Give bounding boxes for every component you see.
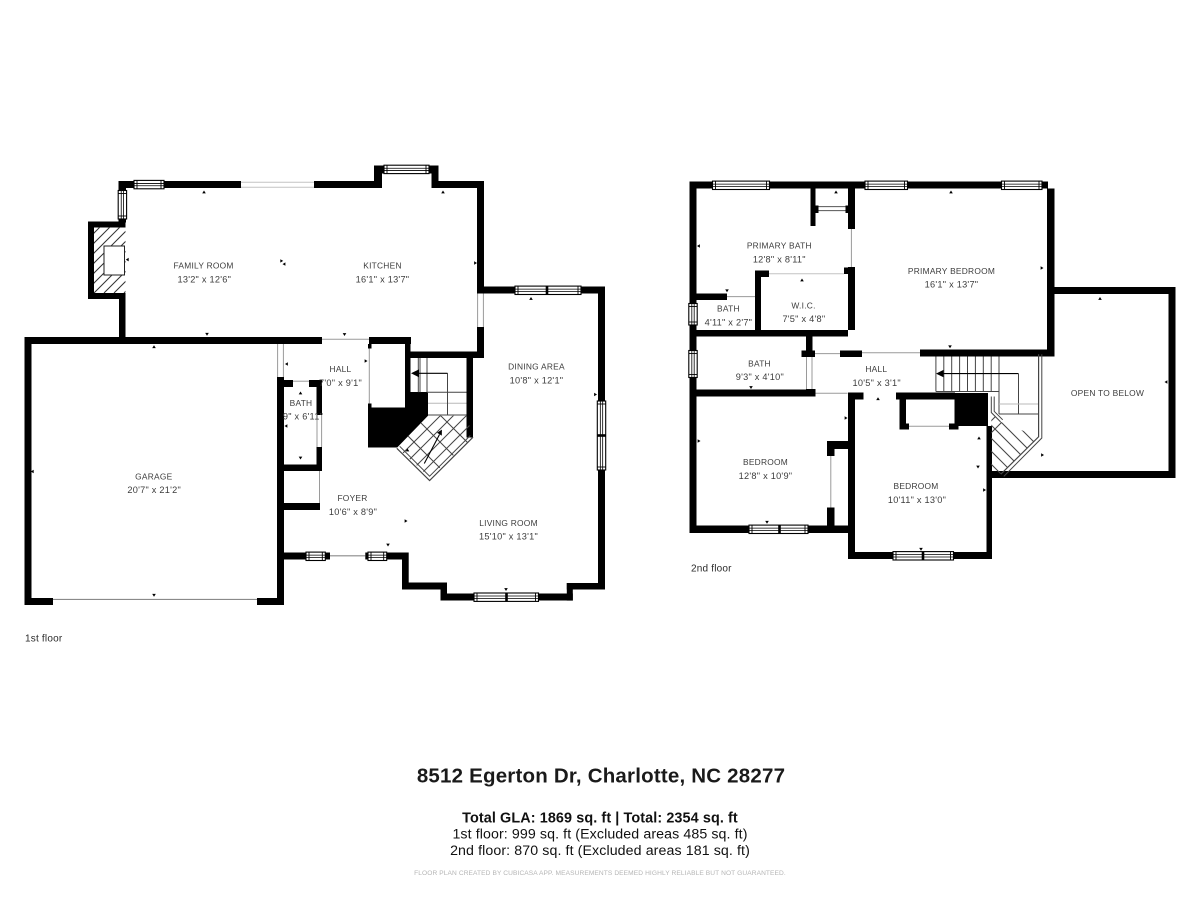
svg-text:KITCHEN: KITCHEN bbox=[363, 261, 402, 271]
svg-text:FAMILY ROOM: FAMILY ROOM bbox=[174, 261, 234, 271]
svg-text:10'5" x 3'1": 10'5" x 3'1" bbox=[853, 378, 901, 388]
svg-text:HALL: HALL bbox=[865, 364, 887, 374]
svg-text:BATH: BATH bbox=[290, 398, 313, 408]
svg-text:GARAGE: GARAGE bbox=[135, 471, 172, 481]
svg-text:12'8" x 8'11": 12'8" x 8'11" bbox=[753, 254, 806, 264]
svg-text:OPEN TO BELOW: OPEN TO BELOW bbox=[1071, 388, 1144, 398]
svg-text:16'1" x 13'7": 16'1" x 13'7" bbox=[356, 275, 410, 285]
svg-text:BEDROOM: BEDROOM bbox=[743, 457, 788, 467]
svg-text:2nd floor: 870 sq. ft (Exclude: 2nd floor: 870 sq. ft (Excluded areas 18… bbox=[450, 843, 750, 859]
svg-text:LIVING ROOM: LIVING ROOM bbox=[479, 518, 538, 528]
svg-text:16'1" x 13'7": 16'1" x 13'7" bbox=[925, 280, 979, 290]
svg-text:10'8" x 12'1": 10'8" x 12'1" bbox=[510, 375, 564, 385]
svg-text:8512 Egerton Dr, Charlotte, NC: 8512 Egerton Dr, Charlotte, NC 28277 bbox=[417, 765, 785, 788]
svg-text:DINING AREA: DINING AREA bbox=[508, 362, 565, 372]
svg-text:PRIMARY BATH: PRIMARY BATH bbox=[747, 241, 812, 251]
svg-text:Total GLA: 1869 sq. ft | Total: Total GLA: 1869 sq. ft | Total: 2354 sq.… bbox=[462, 811, 738, 827]
svg-text:1st floor: 999 sq. ft (Exclude: 1st floor: 999 sq. ft (Excluded areas 48… bbox=[452, 827, 747, 843]
svg-text:BATH: BATH bbox=[717, 304, 740, 314]
svg-text:BATH: BATH bbox=[748, 358, 771, 368]
svg-text:1st floor: 1st floor bbox=[25, 634, 63, 645]
svg-text:7'0" x 9'1": 7'0" x 9'1" bbox=[319, 378, 362, 388]
svg-text:HALL: HALL bbox=[330, 364, 352, 374]
svg-text:BEDROOM: BEDROOM bbox=[893, 481, 938, 491]
svg-text:13'2" x 12'6": 13'2" x 12'6" bbox=[177, 275, 231, 285]
svg-text:9" x 6'11": 9" x 6'11" bbox=[283, 412, 323, 422]
svg-text:W.I.C.: W.I.C. bbox=[791, 300, 815, 310]
svg-text:12'8" x 10'9": 12'8" x 10'9" bbox=[739, 471, 793, 481]
svg-text:2nd floor: 2nd floor bbox=[691, 564, 732, 575]
svg-text:7'5" x 4'8": 7'5" x 4'8" bbox=[782, 314, 825, 324]
svg-text:FOYER: FOYER bbox=[337, 493, 367, 503]
svg-text:20'7" x 21'2": 20'7" x 21'2" bbox=[127, 485, 181, 495]
svg-text:PRIMARY BEDROOM: PRIMARY BEDROOM bbox=[908, 266, 995, 276]
svg-text:15'10" x 13'1": 15'10" x 13'1" bbox=[479, 532, 538, 542]
svg-text:10'6" x 8'9": 10'6" x 8'9" bbox=[329, 507, 377, 517]
svg-text:10'11" x 13'0": 10'11" x 13'0" bbox=[888, 495, 946, 505]
svg-text:9'3" x 4'10": 9'3" x 4'10" bbox=[736, 372, 784, 382]
svg-text:4'11" x 2'7": 4'11" x 2'7" bbox=[705, 317, 753, 327]
svg-text:FLOOR PLAN CREATED BY CUBICASA: FLOOR PLAN CREATED BY CUBICASA APP. MEAS… bbox=[414, 870, 786, 877]
